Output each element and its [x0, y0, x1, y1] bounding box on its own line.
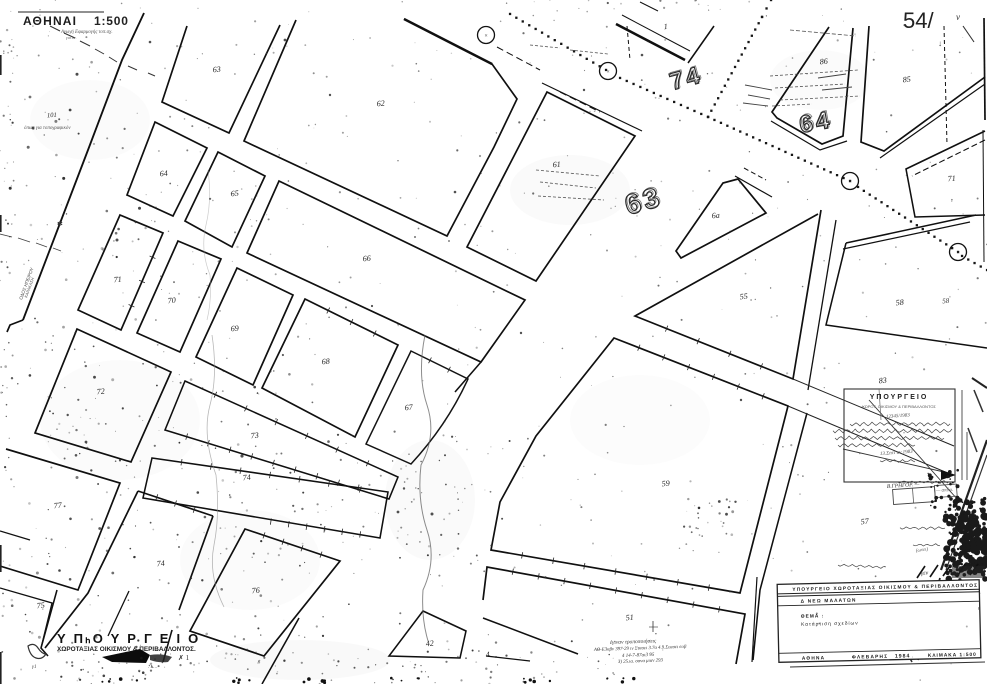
svg-text:59: 59: [661, 479, 670, 489]
svg-text:85: 85: [902, 75, 911, 85]
svg-text:ΘΕΜΑ :: ΘΕΜΑ :: [801, 613, 824, 620]
svg-text:54/: 54/: [903, 8, 934, 33]
svg-text:64: 64: [797, 106, 834, 138]
svg-text:γ1: γ1: [32, 665, 36, 670]
svg-text:55: 55: [739, 292, 748, 302]
svg-text:63: 63: [212, 65, 221, 75]
svg-text:1984: 1984: [895, 653, 911, 659]
svg-text:62: 62: [376, 99, 385, 109]
svg-text:83: 83: [878, 376, 887, 386]
svg-text:74: 74: [156, 559, 165, 569]
svg-text:ΑΘΗΝΑ: ΑΘΗΝΑ: [802, 655, 826, 662]
svg-text:✗ 1: ✗ 1: [178, 654, 190, 662]
svg-text:74: 74: [242, 473, 251, 483]
svg-text:64: 64: [159, 169, 168, 179]
svg-text:69: 69: [230, 324, 239, 334]
svg-text:1:500: 1:500: [94, 14, 129, 28]
svg-text:ΥΠΟΥΡΓΕΙΟ: ΥΠΟΥΡΓΕΙΟ: [870, 394, 929, 401]
svg-text:ν: ν: [956, 12, 960, 22]
svg-text:.: .: [912, 653, 914, 659]
svg-text:58: 58: [942, 297, 950, 306]
svg-text:73: 73: [250, 431, 259, 441]
svg-text:71: 71: [947, 174, 956, 184]
svg-text:66: 66: [362, 254, 371, 264]
svg-text:✱: ✱: [57, 220, 63, 228]
svg-text:×: ×: [956, 251, 960, 257]
svg-text:42: 42: [425, 639, 434, 649]
svg-text:70: 70: [167, 296, 176, 306]
svg-text:71: 71: [113, 275, 122, 285]
svg-text:×: ×: [848, 180, 852, 186]
svg-text:Υ ΠₕΟ Υ Ρ Γ Ε Ι Ο: Υ ΠₕΟ Υ Ρ Γ Ε Ι Ο: [57, 631, 200, 646]
svg-text:58: 58: [895, 298, 904, 308]
svg-text:×: ×: [484, 34, 488, 40]
svg-text:×: ×: [606, 70, 610, 76]
svg-text:γεν: γεν: [921, 570, 929, 577]
svg-text:ΧΩΡΟΤ. ΟΙΚΙΣΜΟΥ & ΠΕΡΙΒΑΛΛΟΝΤΟ: ΧΩΡΟΤ. ΟΙΚΙΣΜΟΥ & ΠΕΡΙΒΑΛΛΟΝΤΟΣ: [862, 404, 936, 409]
svg-text:ΦΛΕΒΑΡΗΣ: ΦΛΕΒΑΡΗΣ: [852, 654, 889, 661]
svg-text:ΚΛΙΜΑΚΑ 1:500: ΚΛΙΜΑΚΑ 1:500: [928, 652, 977, 659]
svg-text:68: 68: [321, 357, 330, 367]
svg-text:75: 75: [36, 601, 45, 611]
svg-text:ι: ι: [978, 606, 979, 612]
svg-text:51: 51: [625, 613, 634, 623]
svg-text:↓: ↓: [938, 39, 942, 48]
svg-text:6a: 6a: [711, 211, 720, 221]
